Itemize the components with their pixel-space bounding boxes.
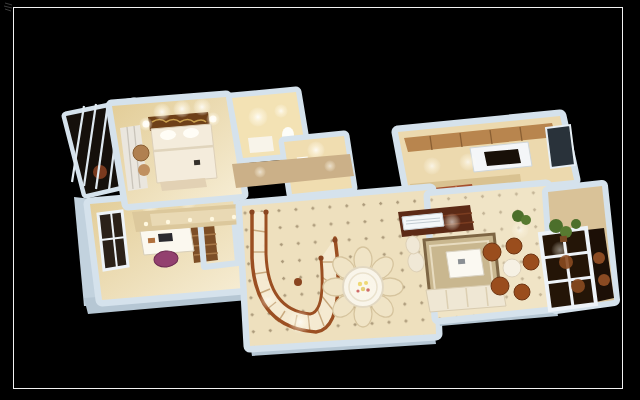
kitchen-window [546,125,575,168]
armchair [133,145,149,161]
laptop [158,233,173,242]
floorplan-render [0,0,640,400]
stair-center-post [294,278,302,286]
ottoman [138,164,150,176]
cooktop [484,149,521,166]
dining-set [323,247,403,327]
corner-artifact [4,3,12,11]
vanity [248,136,274,153]
wicker-table [503,259,521,277]
render-canvas [0,0,640,400]
room-master-bedroom [112,97,242,204]
